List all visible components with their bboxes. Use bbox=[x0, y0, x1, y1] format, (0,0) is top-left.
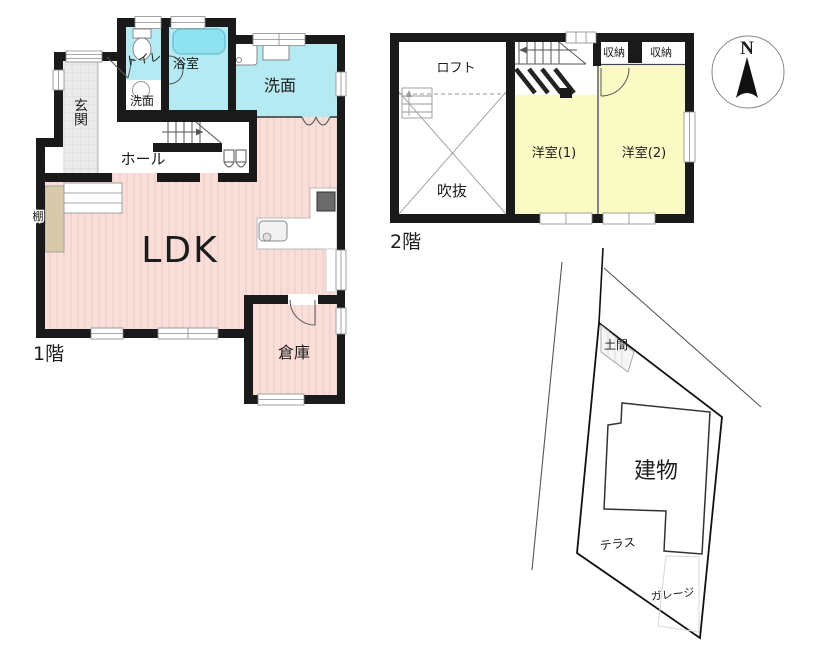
room-western2 bbox=[599, 66, 685, 214]
building-label: 建物 bbox=[634, 459, 678, 484]
room-washroom-small-label: 洗面 bbox=[130, 94, 154, 108]
floor1-label: 1階 bbox=[33, 343, 64, 365]
terrace-label: テラス bbox=[599, 535, 636, 553]
kitchen-sink-icon bbox=[259, 221, 287, 241]
room-void-label: 吹抜 bbox=[437, 182, 467, 200]
garage-label: ガレージ bbox=[650, 586, 695, 604]
doma-label: 土間 bbox=[604, 338, 628, 352]
boundary-spur-line bbox=[599, 248, 603, 323]
compass: N bbox=[712, 36, 784, 108]
room-western1-label: 洋室(1) bbox=[532, 145, 576, 161]
floor2-label: 2階 bbox=[390, 231, 421, 253]
entrance-door-icon bbox=[66, 51, 102, 62]
shelf-label: 棚 bbox=[33, 209, 44, 223]
room-hall-label: ホール bbox=[120, 150, 165, 168]
bench-steps bbox=[64, 183, 122, 213]
stove-icon bbox=[317, 192, 335, 211]
closet1-label: 収納 bbox=[603, 46, 625, 59]
room-western2-label: 洋室(2) bbox=[622, 145, 666, 161]
room-ldk-label: LDK bbox=[141, 230, 218, 271]
bathtub-icon bbox=[173, 29, 225, 54]
north-needle-icon bbox=[736, 57, 758, 98]
road-line-west bbox=[532, 262, 562, 570]
room-storage-label: 倉庫 bbox=[278, 343, 310, 362]
room-genkan-label: 玄関 bbox=[72, 97, 88, 127]
floorplan-1f: LDK 玄関 ホール トイレ 浴室 洗面 洗面 棚 倉庫 1階 bbox=[33, 17, 347, 406]
shelf bbox=[45, 186, 64, 252]
closet2-label: 収納 bbox=[650, 46, 672, 59]
room-bath-label: 浴室 bbox=[173, 56, 199, 72]
room-loft-label: ロフト bbox=[436, 61, 475, 76]
floorplan-2f: ロフト 吹抜 洋室(1) 洋室(2) 収納 収納 2階 bbox=[390, 32, 695, 253]
floorplan-page: LDK 玄関 ホール トイレ 浴室 洗面 洗面 棚 倉庫 1階 bbox=[0, 0, 816, 660]
room-washroom-label: 洗面 bbox=[264, 76, 296, 95]
site-plan: 建物 土間 テラス ガレージ bbox=[532, 248, 761, 638]
compass-north-label: N bbox=[740, 38, 754, 59]
